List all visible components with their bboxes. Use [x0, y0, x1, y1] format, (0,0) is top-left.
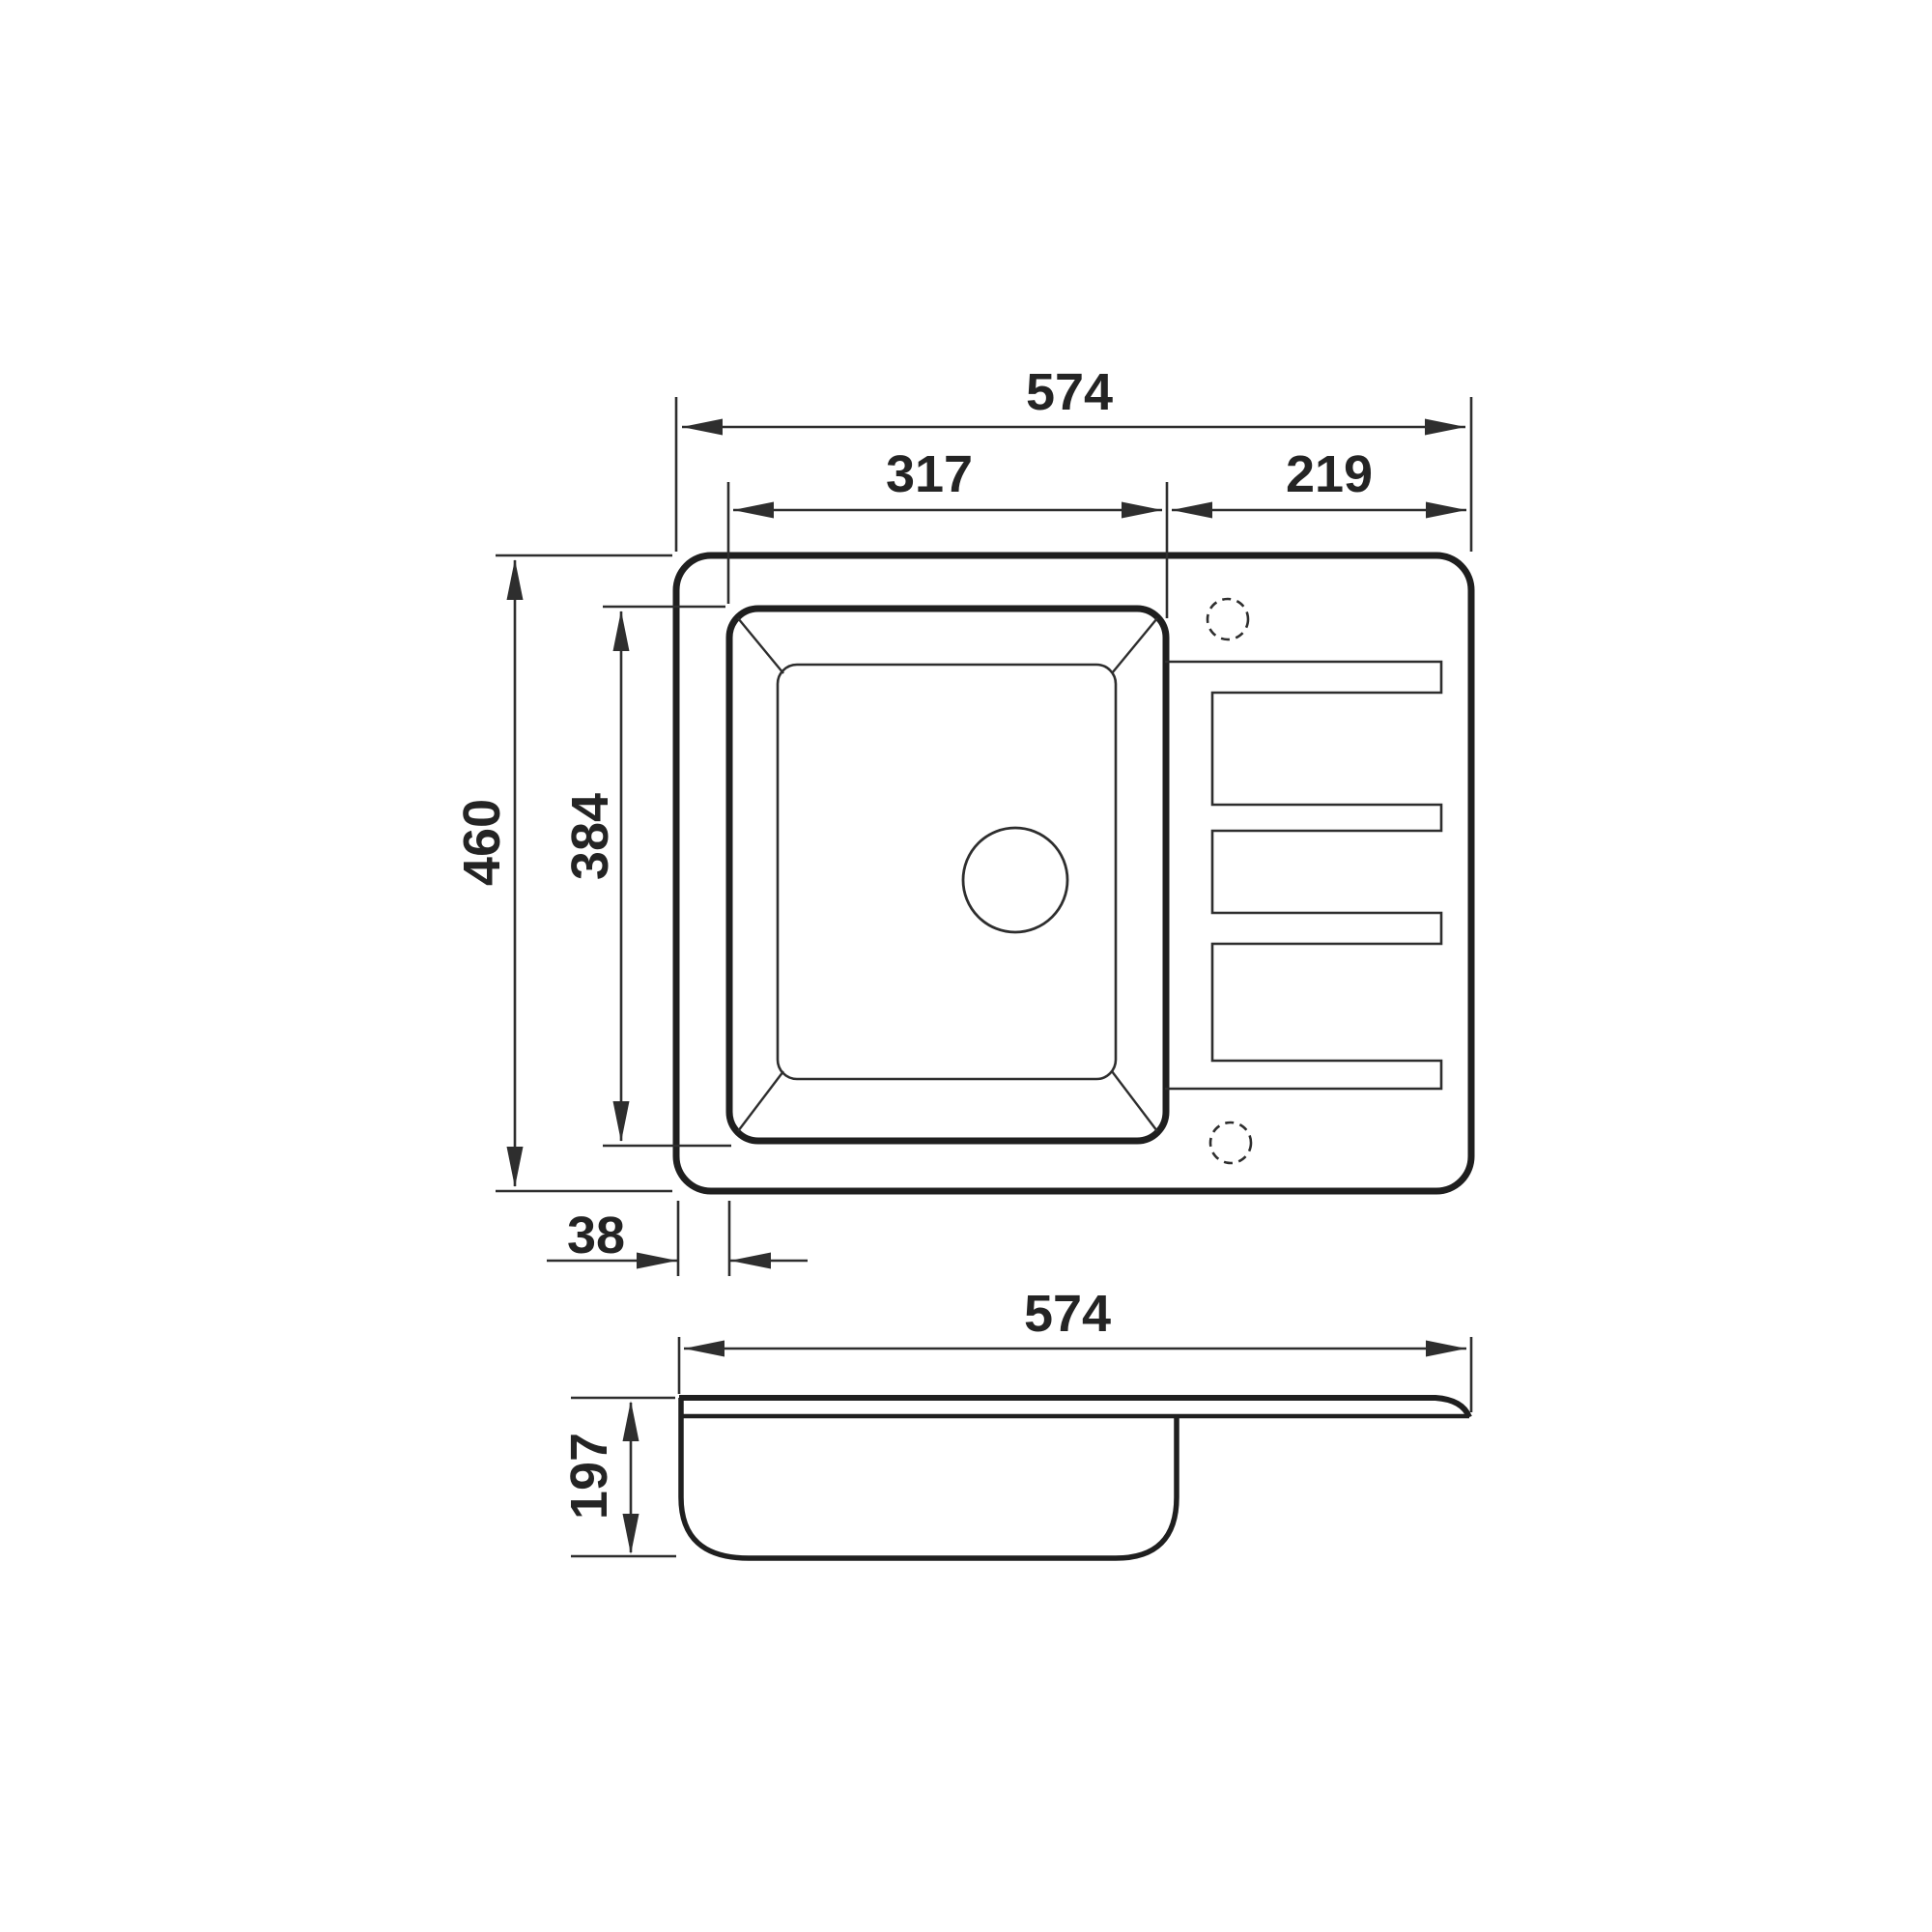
dim-label-side-bowl-depth: 197 [560, 1433, 618, 1520]
faucet-hole-top-icon [1207, 599, 1248, 639]
bowl-corner-bevels [738, 618, 1157, 1131]
bowl-bottom-outline [778, 665, 1116, 1079]
dim-label-drainboard-width: 219 [1286, 445, 1373, 503]
sink-top-view [676, 555, 1471, 1191]
drain-hole [963, 828, 1067, 932]
technical-drawing-page: 574 317 219 460 384 38 [0, 0, 1932, 1932]
sink-dimension-diagram: 574 317 219 460 384 38 [0, 0, 1932, 1932]
dim-label-side-overall-width: 574 [1024, 1285, 1111, 1343]
side-bowl-tub-outline [681, 1398, 1177, 1558]
dim-bowl-depth [603, 607, 731, 1146]
sink-side-view [679, 1398, 1469, 1558]
drainboard-grooves [1165, 662, 1441, 1089]
sink-outline [676, 555, 1471, 1191]
dim-label-bowl-width: 317 [886, 445, 973, 503]
dim-label-overall-depth: 460 [453, 799, 511, 886]
dim-label-top-overall-width: 574 [1026, 363, 1113, 421]
dim-label-bowl-offset: 38 [567, 1207, 625, 1264]
bowl-rim-outline [729, 609, 1166, 1141]
dim-side-overall-width [679, 1337, 1471, 1412]
dim-label-bowl-depth: 384 [561, 793, 619, 880]
faucet-hole-bottom-icon [1210, 1122, 1251, 1163]
